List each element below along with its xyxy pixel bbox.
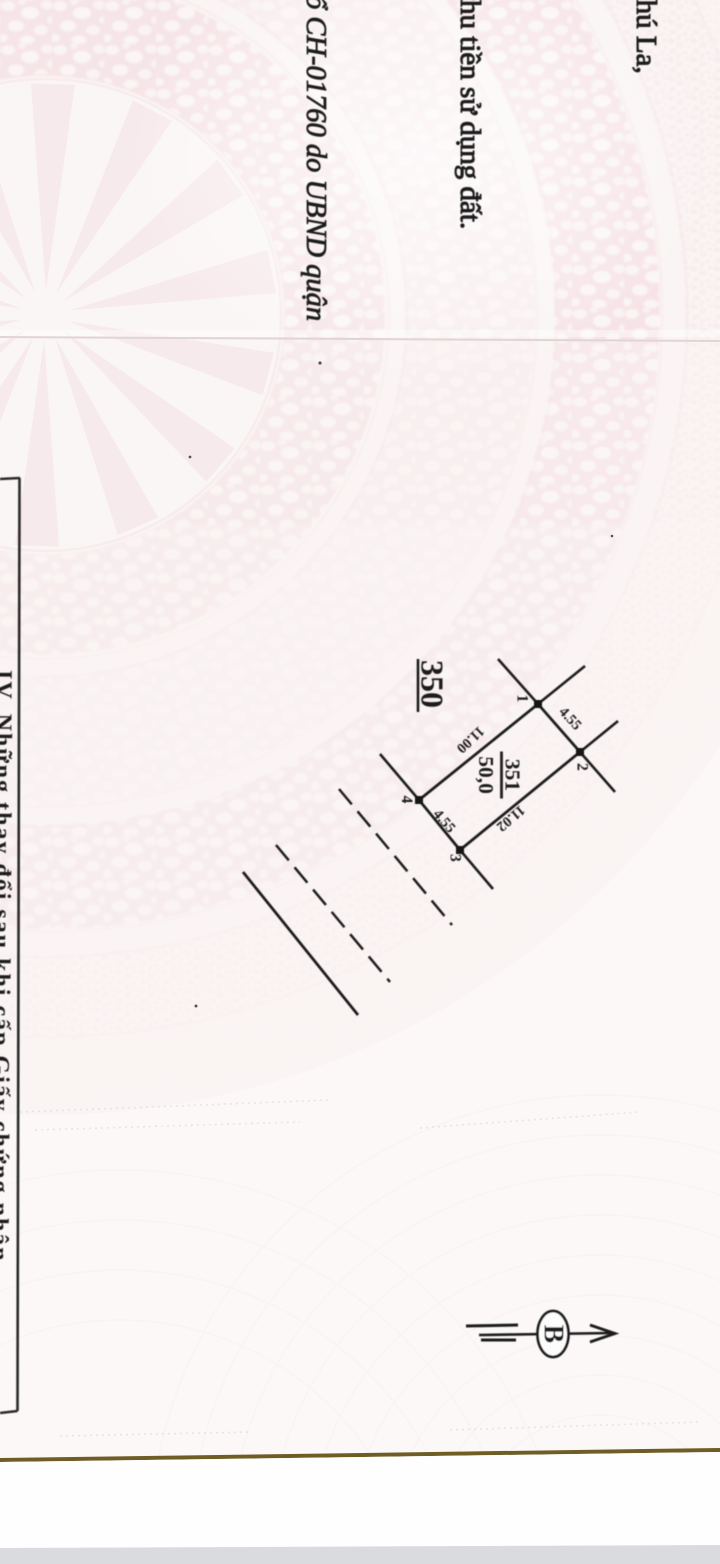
- svg-text:50,0: 50,0: [474, 756, 498, 794]
- svg-text:350: 350: [415, 660, 451, 708]
- svg-text:351: 351: [501, 759, 525, 791]
- svg-text:ổ CH-01760 do UBND quận: ổ CH-01760 do UBND quận: [300, 0, 331, 321]
- svg-text:4: 4: [398, 796, 415, 804]
- svg-text:B: B: [538, 1325, 569, 1344]
- svg-text:Phú La,: Phú La,: [630, 0, 662, 74]
- svg-text:2: 2: [574, 763, 591, 771]
- svg-text:thu tiền sử dụng đất.: thu tiền sử dụng đất.: [454, 0, 486, 229]
- svg-text:3: 3: [447, 854, 464, 862]
- svg-text:1: 1: [514, 695, 531, 703]
